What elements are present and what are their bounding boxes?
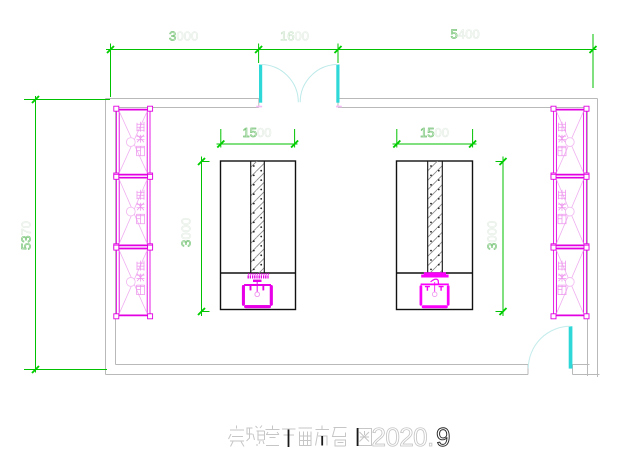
svg-text:400: 400: [458, 27, 480, 42]
svg-text:000: 000: [485, 221, 500, 243]
svg-text:00: 00: [435, 125, 449, 140]
svg-text:000: 000: [179, 218, 194, 240]
svg-text:9: 9: [436, 422, 450, 452]
svg-text:00: 00: [257, 125, 271, 140]
svg-text:000: 000: [177, 29, 199, 44]
svg-text:5: 5: [451, 27, 458, 42]
svg-text:3: 3: [179, 240, 194, 247]
svg-text:15: 15: [420, 125, 434, 140]
svg-text:53: 53: [19, 236, 34, 250]
svg-text:70: 70: [19, 221, 34, 235]
svg-text:3: 3: [485, 243, 500, 250]
svg-text:16: 16: [280, 29, 294, 44]
svg-text:15: 15: [243, 125, 257, 140]
svg-text:3: 3: [169, 29, 176, 44]
svg-text:2020.: 2020.: [372, 422, 434, 452]
svg-text:00: 00: [295, 29, 309, 44]
